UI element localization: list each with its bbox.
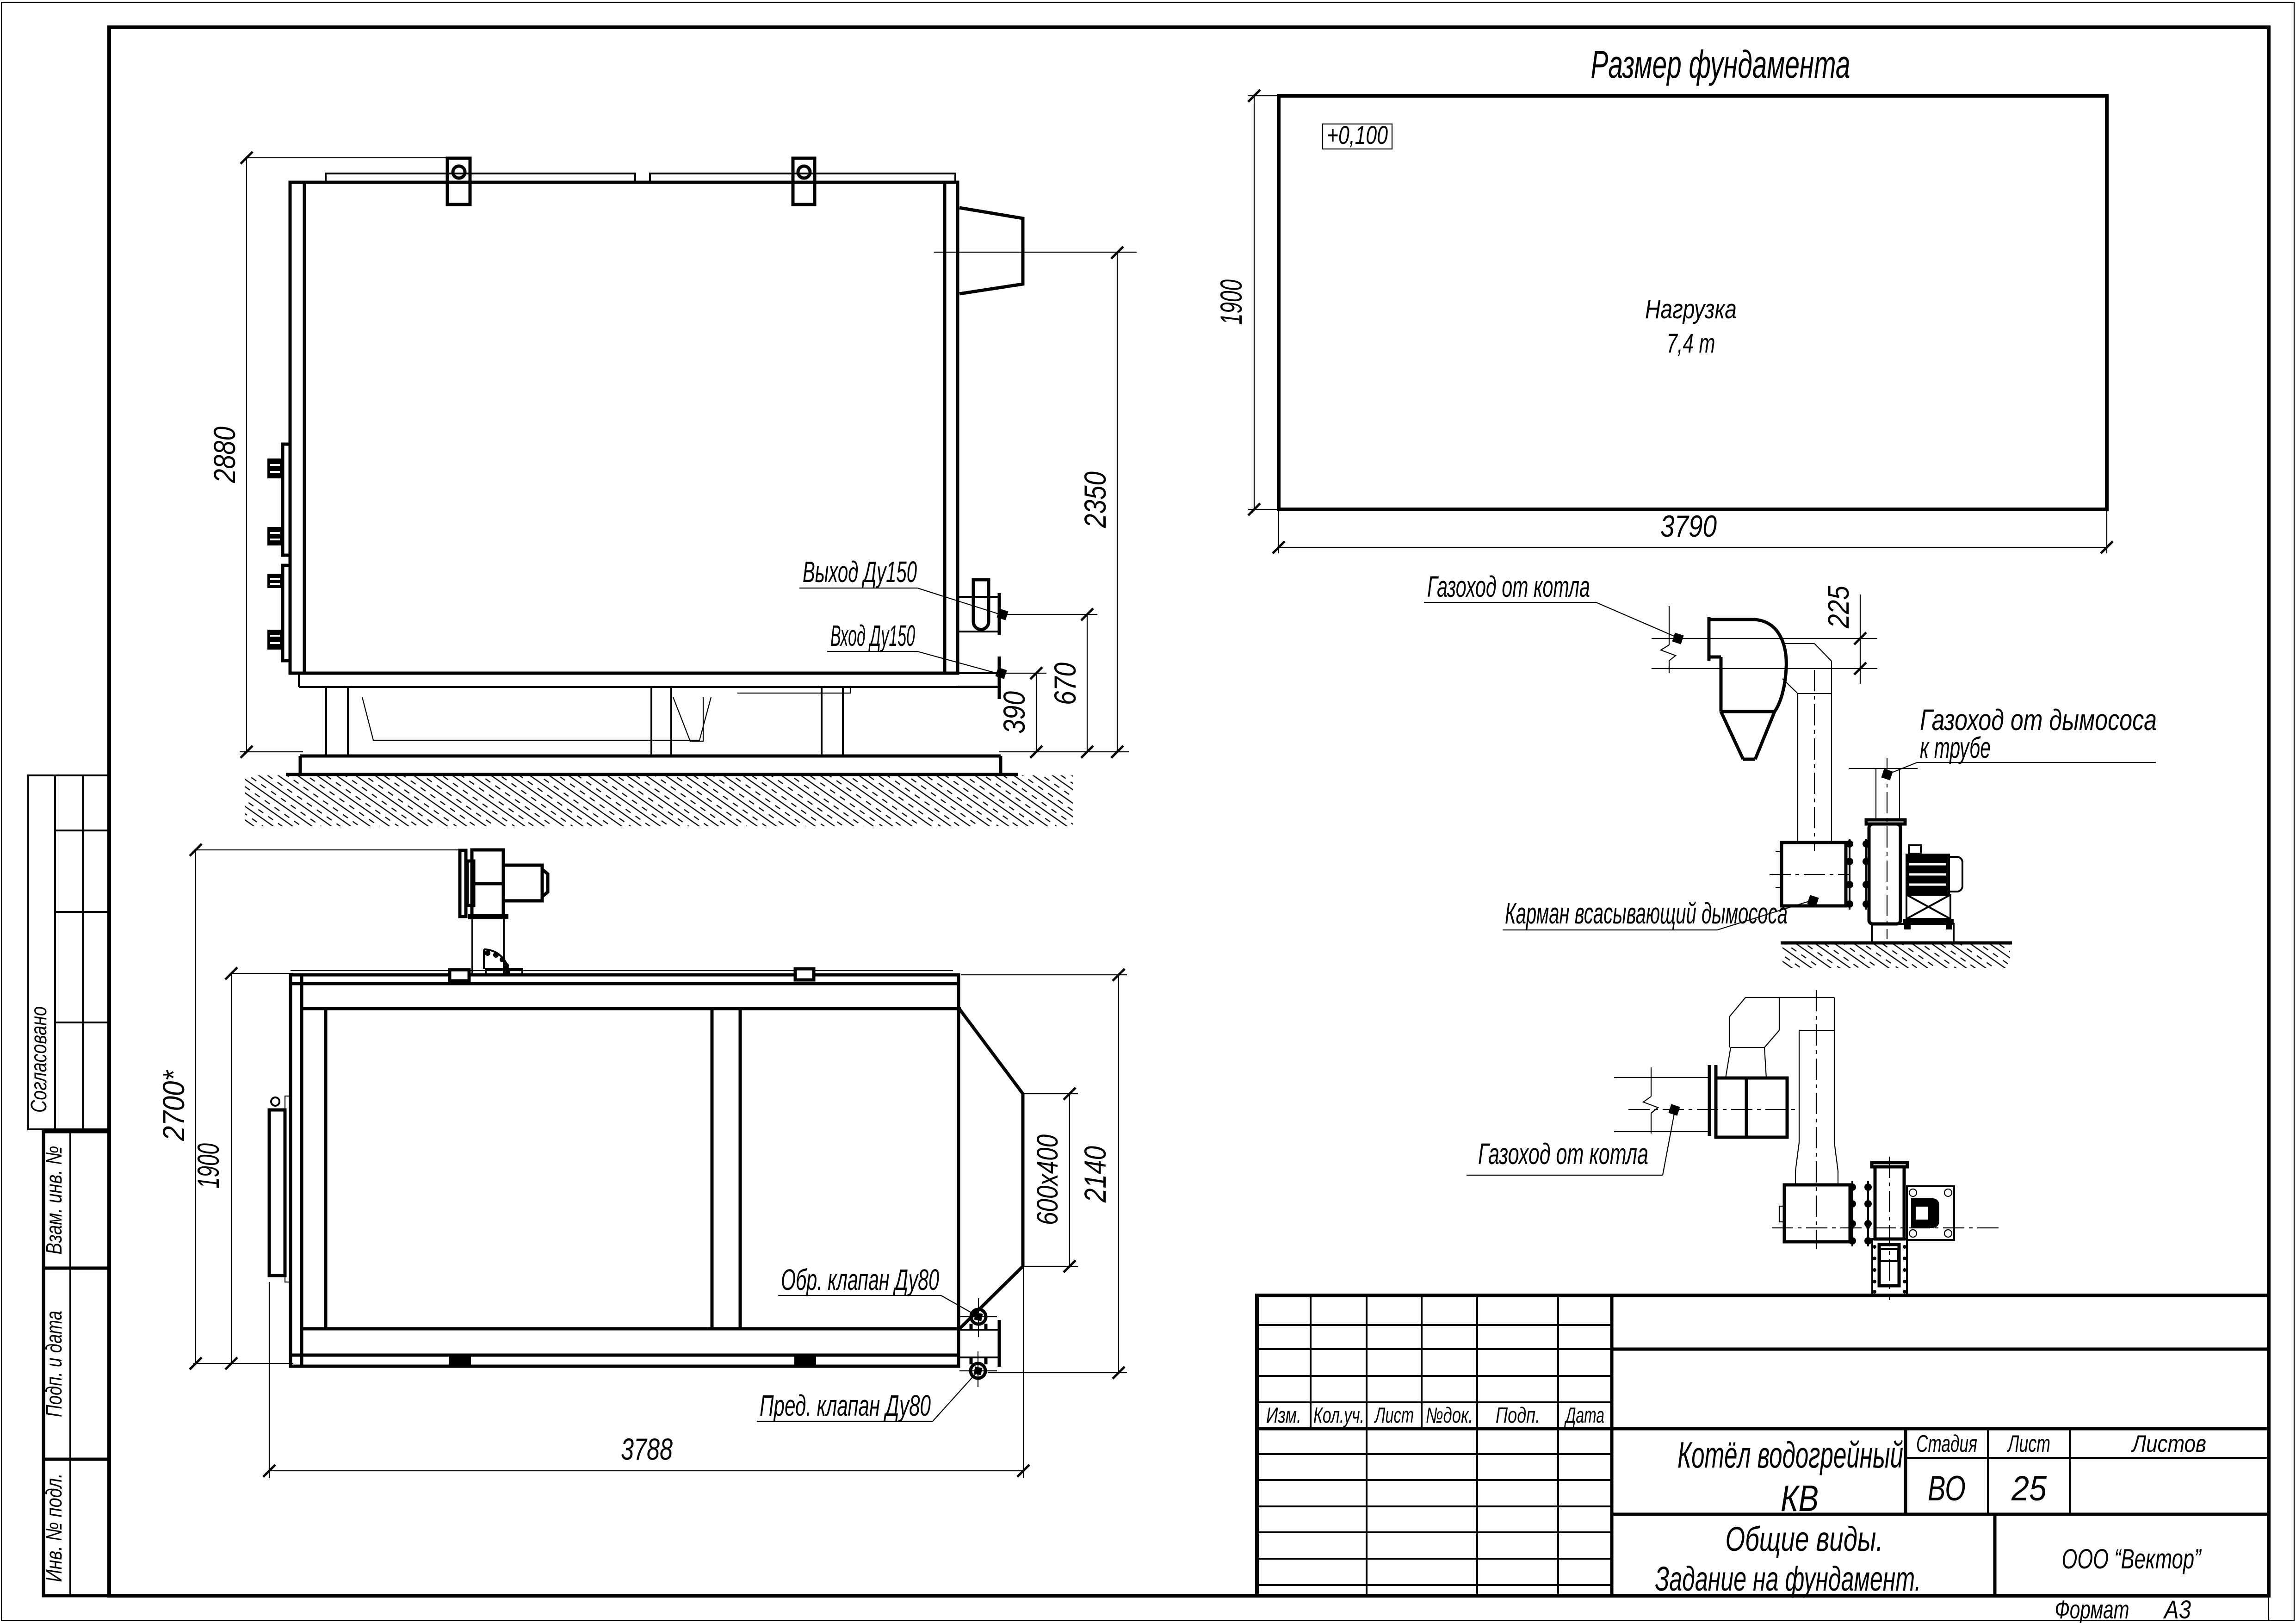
svg-text:Размер фундамента: Размер фундамента [1591,43,1850,86]
svg-text:Кол.уч.: Кол.уч. [1313,1403,1364,1427]
svg-text:25: 25 [2011,1469,2047,1508]
svg-text:2350: 2350 [1078,471,1112,528]
svg-text:600х400: 600х400 [1031,1134,1064,1225]
svg-text:Формат: Формат [2055,1595,2129,1623]
svg-text:Карман всасывающий дымососа: Карман всасывающий дымососа [1505,897,1788,930]
svg-text:2700*: 2700* [156,1070,191,1141]
svg-text:Инв. № подл.: Инв. № подл. [42,1474,67,1582]
svg-text:Согласовано: Согласовано [27,1006,51,1113]
svg-text:2140: 2140 [1078,1146,1112,1203]
svg-text:А3: А3 [2163,1595,2191,1623]
svg-text:Газоход от котла: Газоход от котла [1427,570,1590,603]
svg-text:Лист: Лист [2007,1431,2050,1457]
svg-text:3790: 3790 [1660,509,1717,543]
svg-text:Задание на фундамент.: Задание на фундамент. [1655,1560,1921,1598]
svg-text:к трубе: к трубе [1920,731,1991,764]
svg-text:+0,100: +0,100 [1327,120,1388,149]
svg-text:7,4 т: 7,4 т [1667,328,1715,359]
svg-text:Газоход от котла: Газоход от котла [1478,1137,1648,1171]
svg-text:Подп.: Подп. [1496,1403,1540,1427]
svg-text:Изм.: Изм. [1266,1403,1301,1427]
svg-text:390: 390 [997,691,1031,734]
svg-text:Листов: Листов [2131,1431,2206,1457]
svg-text:ООО “Вектор”: ООО “Вектор” [2062,1543,2202,1574]
svg-text:Подп. и дата: Подп. и дата [42,1311,67,1417]
svg-text:2880: 2880 [207,427,241,483]
svg-text:3788: 3788 [621,1432,673,1466]
svg-text:1900: 1900 [191,1143,225,1189]
svg-text:№док.: №док. [1426,1403,1473,1427]
svg-text:Стадия: Стадия [1916,1431,1977,1457]
svg-text:Дата: Дата [1564,1403,1604,1427]
svg-text:Лист: Лист [1374,1403,1414,1427]
svg-text:Взам. инв. №: Взам. инв. № [42,1146,67,1255]
svg-text:Вход Ду150: Вход Ду150 [830,619,915,652]
svg-text:Котёл водогрейный: Котёл водогрейный [1677,1434,1903,1475]
svg-text:Выход Ду150: Выход Ду150 [803,555,917,588]
svg-text:ВО: ВО [1928,1469,1966,1508]
svg-text:КВ: КВ [1781,1478,1819,1519]
svg-text:Обр. клапан Ду80: Обр. клапан Ду80 [781,1263,939,1296]
svg-text:670: 670 [1048,663,1082,705]
svg-text:Нагрузка: Нагрузка [1645,294,1737,324]
svg-text:Пред. клапан Ду80: Пред. клапан Ду80 [760,1389,931,1422]
svg-text:225: 225 [1822,586,1855,629]
svg-text:Общие виды.: Общие виды. [1726,1520,1883,1558]
svg-text:1900: 1900 [1214,279,1248,325]
